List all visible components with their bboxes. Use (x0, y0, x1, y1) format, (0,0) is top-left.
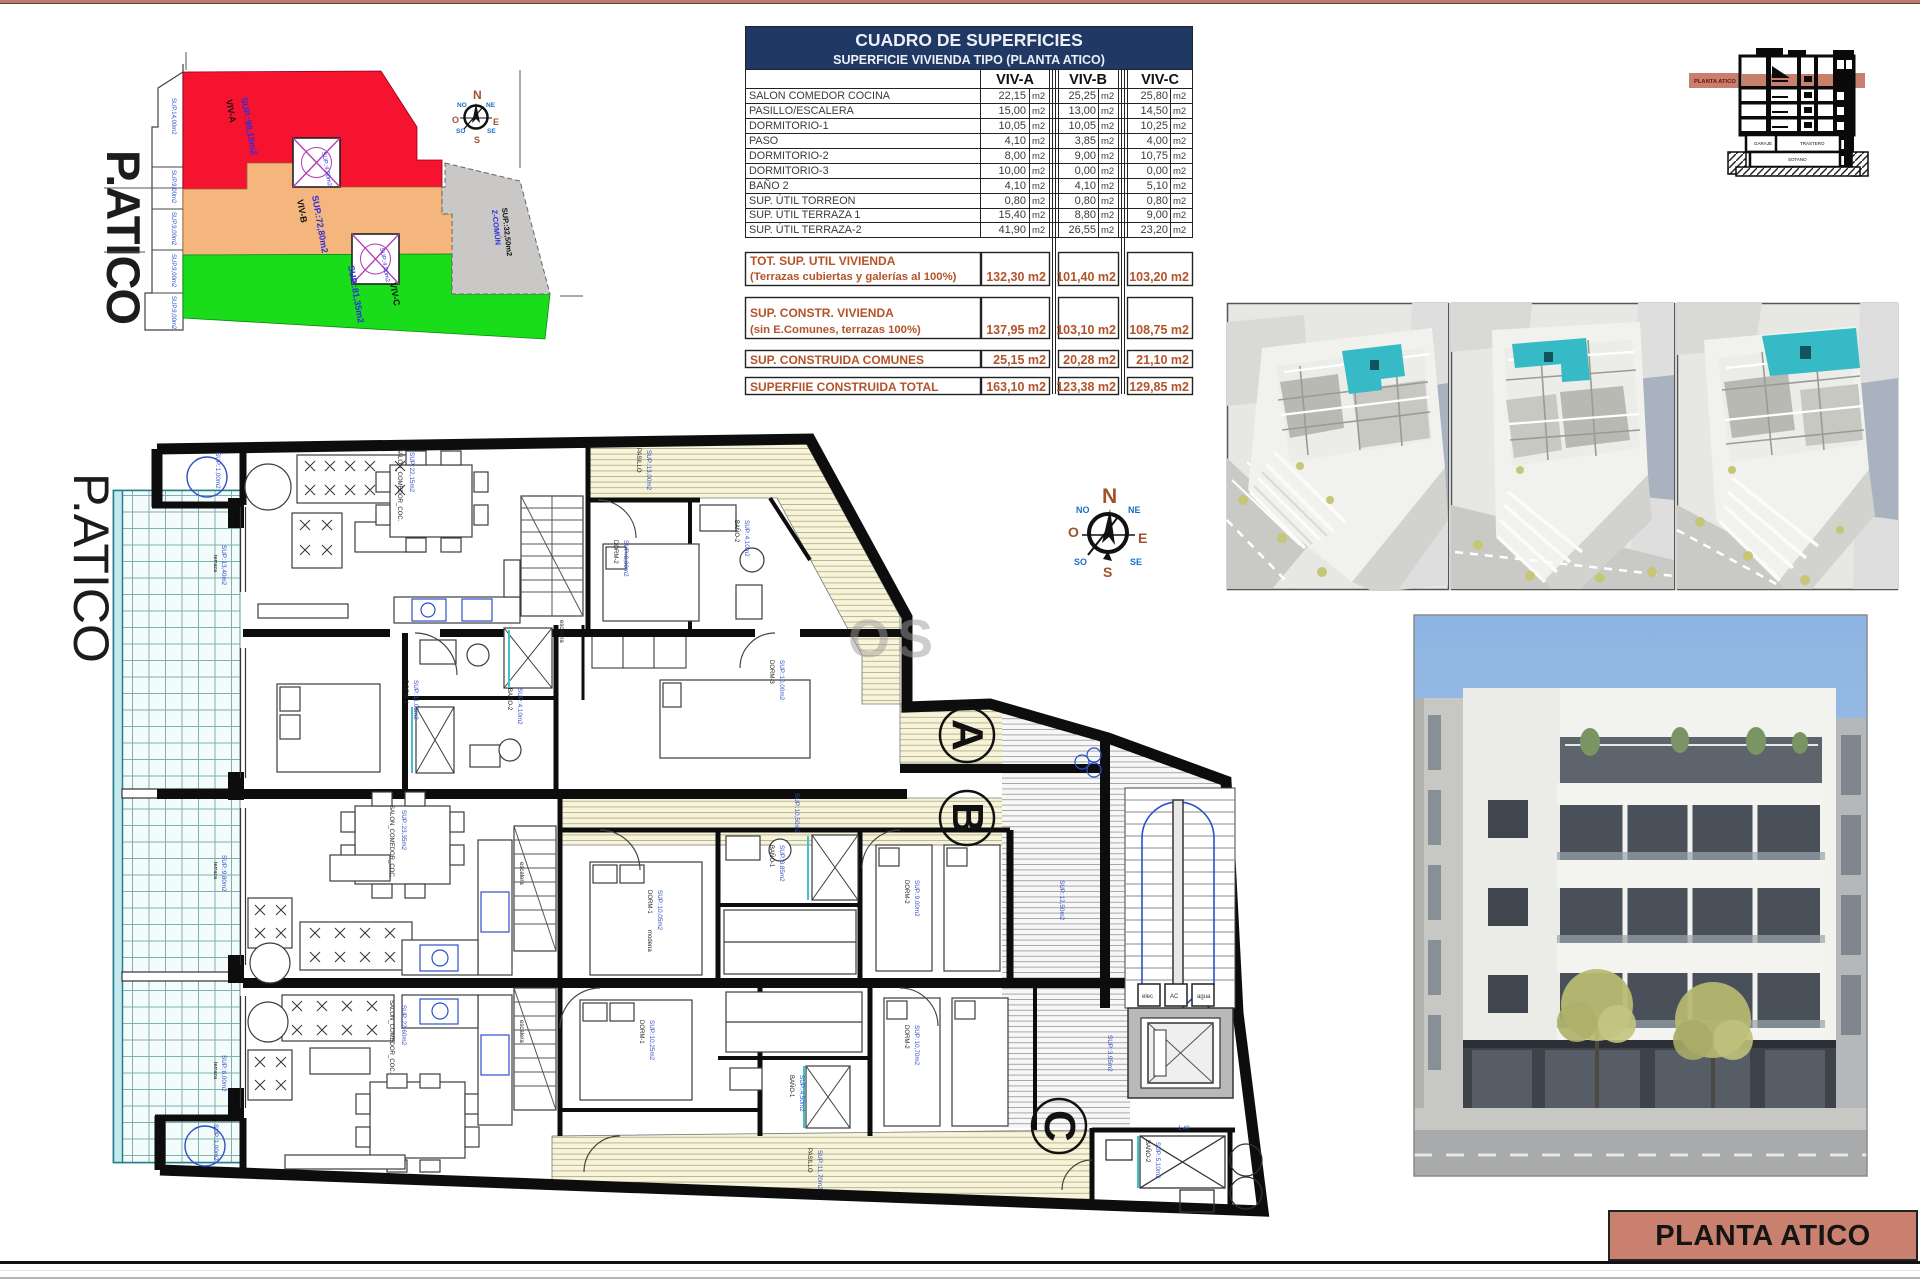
svg-text:PASILLO: PASILLO (806, 1148, 812, 1173)
svg-text:NO: NO (1076, 505, 1090, 515)
svg-text:SOTANO: SOTANO (1788, 157, 1807, 162)
svg-text:4,10: 4,10 (1005, 180, 1026, 192)
svg-text:DORM-2: DORM-2 (903, 880, 909, 904)
svg-text:SUP.:10,00m2: SUP.:10,00m2 (778, 660, 785, 701)
svg-text:O: O (1068, 524, 1079, 540)
svg-text:NE: NE (486, 102, 496, 109)
svg-text:m2: m2 (1032, 121, 1045, 132)
svg-text:SUP.:22,15m2: SUP.:22,15m2 (408, 452, 415, 493)
svg-text:m2: m2 (1101, 225, 1114, 236)
svg-text:DORM-1: DORM-1 (638, 1020, 644, 1044)
svg-text:m2: m2 (1032, 181, 1045, 192)
svg-text:m2: m2 (1032, 151, 1045, 162)
svg-text:15,00: 15,00 (998, 105, 1026, 117)
svg-text:0,00: 0,00 (1147, 165, 1168, 177)
svg-text:NO: NO (457, 102, 467, 109)
svg-text:PLANTA ATICO: PLANTA ATICO (1694, 79, 1736, 85)
svg-text:SUP.:23,35m2: SUP.:23,35m2 (400, 810, 407, 851)
svg-text:BAÑO 2: BAÑO 2 (749, 179, 789, 192)
svg-text:SUP.:10,70m2: SUP.:10,70m2 (913, 1025, 920, 1066)
svg-text:13,00: 13,00 (1068, 105, 1096, 117)
svg-text:20,28 m2: 20,28 m2 (1063, 353, 1116, 367)
svg-text:SUP.:12,50m2: SUP.:12,50m2 (1058, 880, 1065, 921)
svg-text:m2: m2 (1173, 121, 1186, 132)
svg-text:SUP.:11,70m2: SUP.:11,70m2 (816, 1150, 823, 1190)
svg-text:0,00: 0,00 (1075, 165, 1096, 177)
svg-text:S: S (1103, 564, 1112, 580)
svg-text:PASILLO: PASILLO (635, 448, 641, 473)
svg-text:8,80: 8,80 (1075, 209, 1096, 221)
svg-text:SALON COMEDOR COCINA: SALON COMEDOR COCINA (749, 90, 891, 102)
svg-text:terraza: terraza (212, 862, 218, 880)
svg-text:25,25: 25,25 (1068, 90, 1096, 102)
svg-text:m2: m2 (1032, 196, 1045, 207)
svg-text:m2: m2 (1173, 225, 1186, 236)
svg-text:m2: m2 (1173, 210, 1186, 221)
svg-text:SUPERFICIE VIVIENDA TIPO (PLA: SUPERFICIE VIVIENDA TIPO (PLANTA ATICO) (833, 53, 1105, 67)
svg-text:(Terrazas cubiertas y galerías: (Terrazas cubiertas y galerías al 100%) (750, 271, 957, 283)
svg-text:SUP.:11,05m2: SUP.:11,05m2 (412, 680, 419, 720)
svg-text:129,85 m2: 129,85 m2 (1129, 380, 1189, 394)
svg-text:P.ATICO: P.ATICO (63, 473, 119, 663)
svg-text:DORMITORIO-2: DORMITORIO-2 (749, 150, 829, 162)
svg-text:m2: m2 (1032, 106, 1045, 117)
svg-text:m2: m2 (1101, 91, 1114, 102)
svg-text:terraza: terraza (212, 1062, 218, 1080)
svg-text:DORMITORIO-1: DORMITORIO-1 (749, 120, 829, 132)
svg-text:N: N (1102, 485, 1117, 508)
svg-text:14,50: 14,50 (1140, 105, 1168, 117)
svg-text:SUP.:4,50m2: SUP.:4,50m2 (798, 1075, 805, 1112)
svg-text:OS: OS (848, 609, 940, 669)
svg-text:9,00: 9,00 (1075, 150, 1096, 162)
svg-text:0,80: 0,80 (1147, 195, 1168, 207)
svg-text:9,00: 9,00 (1147, 209, 1168, 221)
svg-text:m2: m2 (1101, 136, 1114, 147)
svg-text:m2: m2 (1101, 210, 1114, 221)
svg-text:SUP.:1,00m2: SUP.:1,00m2 (214, 452, 221, 489)
svg-text:m2: m2 (1032, 166, 1045, 177)
svg-text:m2: m2 (1032, 136, 1045, 147)
svg-text:SUP.14,00m2: SUP.14,00m2 (170, 98, 176, 135)
svg-text:SE: SE (1130, 557, 1142, 567)
svg-text:NE: NE (1128, 505, 1141, 515)
svg-text:41,90: 41,90 (998, 224, 1026, 236)
svg-text:10,75: 10,75 (1140, 150, 1168, 162)
svg-text:escalera: escalera (518, 1020, 524, 1043)
svg-text:0,80: 0,80 (1075, 195, 1096, 207)
svg-text:agua: agua (1197, 994, 1211, 1000)
svg-text:DORM-2: DORM-2 (903, 1025, 909, 1049)
svg-text:22,15: 22,15 (998, 90, 1026, 102)
svg-text:CUADRO DE SUPERFICIES: CUADRO DE SUPERFICIES (855, 30, 1083, 50)
svg-text:m2: m2 (1173, 106, 1186, 117)
svg-text:SUP. CONSTRUIDA COMUNES: SUP. CONSTRUIDA COMUNES (750, 353, 924, 367)
svg-text:8,00: 8,00 (1005, 150, 1026, 162)
svg-text:132,30 m2: 132,30 m2 (986, 270, 1046, 284)
svg-text:SUP. ÚTIL TORREON: SUP. ÚTIL TORREON (749, 194, 855, 207)
svg-text:103,20 m2: 103,20 m2 (1129, 270, 1189, 284)
svg-text:SALON_COMEDOR_COC.: SALON_COMEDOR_COC. (396, 448, 402, 522)
svg-text:SUP.:4,10m2: SUP.:4,10m2 (516, 688, 523, 725)
svg-text:10,05: 10,05 (1068, 120, 1096, 132)
svg-text:S: S (474, 135, 480, 145)
svg-text:SALON_COMEDOR_COC.: SALON_COMEDOR_COC. (388, 1000, 394, 1074)
svg-text:m2: m2 (1173, 181, 1186, 192)
svg-text:0,80: 0,80 (1005, 195, 1026, 207)
svg-text:BAÑO-2: BAÑO-2 (506, 688, 513, 711)
svg-text:101,40 m2: 101,40 m2 (1056, 270, 1116, 284)
svg-text:SUP. CONSTR. VIVIENDA: SUP. CONSTR. VIVIENDA (750, 306, 894, 320)
svg-text:SUP.9,00m2: SUP.9,00m2 (170, 296, 176, 330)
svg-text:26,55: 26,55 (1068, 224, 1096, 236)
svg-text:SUP.:13,40m2: SUP.:13,40m2 (220, 545, 227, 586)
svg-text:SUP.:10,05m2: SUP.:10,05m2 (656, 890, 663, 931)
svg-text:108,75 m2: 108,75 m2 (1129, 323, 1189, 337)
svg-text:C: C (1035, 1110, 1084, 1142)
svg-text:elec: elec (1142, 994, 1153, 1000)
svg-text:BAÑO-2: BAÑO-2 (1144, 1140, 1151, 1163)
svg-text:escalera: escalera (518, 862, 524, 885)
svg-text:SUP.:8,00m2: SUP.:8,00m2 (220, 1055, 227, 1092)
svg-text:SUP.:10,50m2: SUP.:10,50m2 (793, 793, 800, 834)
svg-text:10,00: 10,00 (998, 165, 1026, 177)
svg-text:SO: SO (1074, 557, 1087, 567)
svg-text:SUP.:10,25m2: SUP.:10,25m2 (648, 1020, 655, 1061)
svg-text:SUP.9,00m2: SUP.9,00m2 (170, 170, 176, 204)
svg-text:25,80: 25,80 (1140, 90, 1168, 102)
svg-text:SUP.9,00m2: SUP.9,00m2 (170, 254, 176, 288)
svg-text:DORM-2: DORM-2 (612, 540, 618, 564)
svg-text:SUP.:4,10m2: SUP.:4,10m2 (743, 520, 750, 557)
svg-text:PASO: PASO (749, 135, 778, 147)
svg-text:SALON_COMEDOR_COC.: SALON_COMEDOR_COC. (388, 805, 394, 879)
svg-text:m2: m2 (1101, 181, 1114, 192)
svg-text:4,10: 4,10 (1075, 180, 1096, 192)
svg-text:SUP.:3,95m2: SUP.:3,95m2 (1106, 1035, 1113, 1072)
svg-text:SE: SE (487, 128, 496, 135)
svg-text:103,10 m2: 103,10 m2 (1056, 323, 1116, 337)
svg-text:137,95 m2: 137,95 m2 (986, 323, 1046, 337)
svg-text:1,40: 1,40 (1178, 1126, 1190, 1132)
svg-text:SUP. ÚTIL TERRAZA 1: SUP. ÚTIL TERRAZA 1 (749, 208, 860, 221)
svg-text:GARAJE: GARAJE (1754, 141, 1772, 146)
svg-text:m2: m2 (1032, 91, 1045, 102)
svg-text:P.ATICO: P.ATICO (97, 150, 150, 324)
svg-text:AC: AC (1170, 994, 1179, 1000)
svg-text:VIV-A: VIV-A (996, 72, 1034, 88)
svg-text:123,38 m2: 123,38 m2 (1056, 380, 1116, 394)
svg-text:m2: m2 (1032, 225, 1045, 236)
svg-text:BAÑO-2: BAÑO-2 (733, 520, 740, 543)
svg-text:m2: m2 (1173, 91, 1186, 102)
svg-text:E: E (1138, 530, 1147, 546)
svg-text:BAÑO-1: BAÑO-1 (788, 1075, 795, 1098)
svg-text:m2: m2 (1101, 151, 1114, 162)
svg-text:DORM-1: DORM-1 (646, 890, 652, 914)
svg-text:A: A (943, 719, 992, 751)
svg-text:4,00: 4,00 (1147, 135, 1168, 147)
svg-text:m2: m2 (1173, 151, 1186, 162)
svg-text:10,05: 10,05 (998, 120, 1026, 132)
svg-text:DORM-4: DORM-4 (402, 680, 408, 704)
svg-text:10,25: 10,25 (1140, 120, 1168, 132)
svg-text:SUP.:1,00m2: SUP.:1,00m2 (212, 1124, 219, 1161)
svg-text:SUP.:9,80m2: SUP.:9,80m2 (220, 855, 227, 892)
svg-text:escalera: escalera (558, 620, 564, 643)
svg-text:SUP.9,00m2: SUP.9,00m2 (170, 212, 176, 246)
svg-text:(sin E.Comunes, terrazas 100%): (sin E.Comunes, terrazas 100%) (750, 324, 921, 336)
svg-text:3,85: 3,85 (1075, 135, 1096, 147)
svg-text:O: O (452, 115, 459, 125)
svg-text:VIV-B: VIV-B (1069, 72, 1107, 88)
svg-text:B: B (943, 802, 992, 834)
svg-text:VIV-C: VIV-C (1141, 72, 1179, 88)
svg-text:163,10 m2: 163,10 m2 (986, 380, 1046, 394)
svg-text:E: E (493, 117, 499, 127)
svg-text:BAÑO-1: BAÑO-1 (768, 845, 775, 868)
svg-text:SUPERFIIE CONSTRUIDA TOTAL: SUPERFIIE CONSTRUIDA TOTAL (750, 380, 938, 394)
svg-text:25,15 m2: 25,15 m2 (993, 353, 1046, 367)
svg-text:SUP.:5,10m2: SUP.:5,10m2 (1154, 1142, 1161, 1179)
svg-text:SUP.:22,60m2: SUP.:22,60m2 (400, 1005, 407, 1046)
svg-text:modena: modena (646, 930, 652, 952)
svg-text:5,10: 5,10 (1147, 180, 1168, 192)
svg-text:TRASTERO: TRASTERO (1800, 141, 1825, 146)
svg-text:terraza: terraza (212, 555, 218, 573)
svg-text:m2: m2 (1101, 106, 1114, 117)
svg-text:m2: m2 (1101, 121, 1114, 132)
svg-text:23,20: 23,20 (1140, 224, 1168, 236)
svg-text:15,40: 15,40 (998, 209, 1026, 221)
svg-text:SUP.:13,00m2: SUP.:13,00m2 (645, 450, 652, 491)
svg-text:4,10: 4,10 (1005, 135, 1026, 147)
svg-text:TOT. SUP. UTIL VIVIENDA: TOT. SUP. UTIL VIVIENDA (750, 254, 896, 268)
svg-text:m2: m2 (1101, 196, 1114, 207)
svg-text:m2: m2 (1101, 166, 1114, 177)
svg-text:SO: SO (456, 128, 465, 135)
svg-text:21,10 m2: 21,10 m2 (1136, 353, 1189, 367)
svg-text:SUP. ÚTIL TERRAZA-2: SUP. ÚTIL TERRAZA-2 (749, 223, 862, 236)
svg-text:SUP.:3,85m2: SUP.:3,85m2 (778, 845, 785, 882)
svg-text:m2: m2 (1173, 166, 1186, 177)
svg-text:m2: m2 (1032, 210, 1045, 221)
svg-text:DORM-3: DORM-3 (768, 660, 774, 684)
svg-text:N: N (473, 88, 482, 102)
svg-text:m2: m2 (1173, 136, 1186, 147)
svg-text:DORMITORIO-3: DORMITORIO-3 (749, 165, 829, 177)
svg-text:m2: m2 (1173, 196, 1186, 207)
svg-text:SUP.:9,00m2: SUP.:9,00m2 (913, 880, 920, 917)
svg-text:PASILLO/ESCALERA: PASILLO/ESCALERA (749, 105, 855, 117)
svg-text:SUP.:8,00m2: SUP.:8,00m2 (622, 540, 629, 577)
